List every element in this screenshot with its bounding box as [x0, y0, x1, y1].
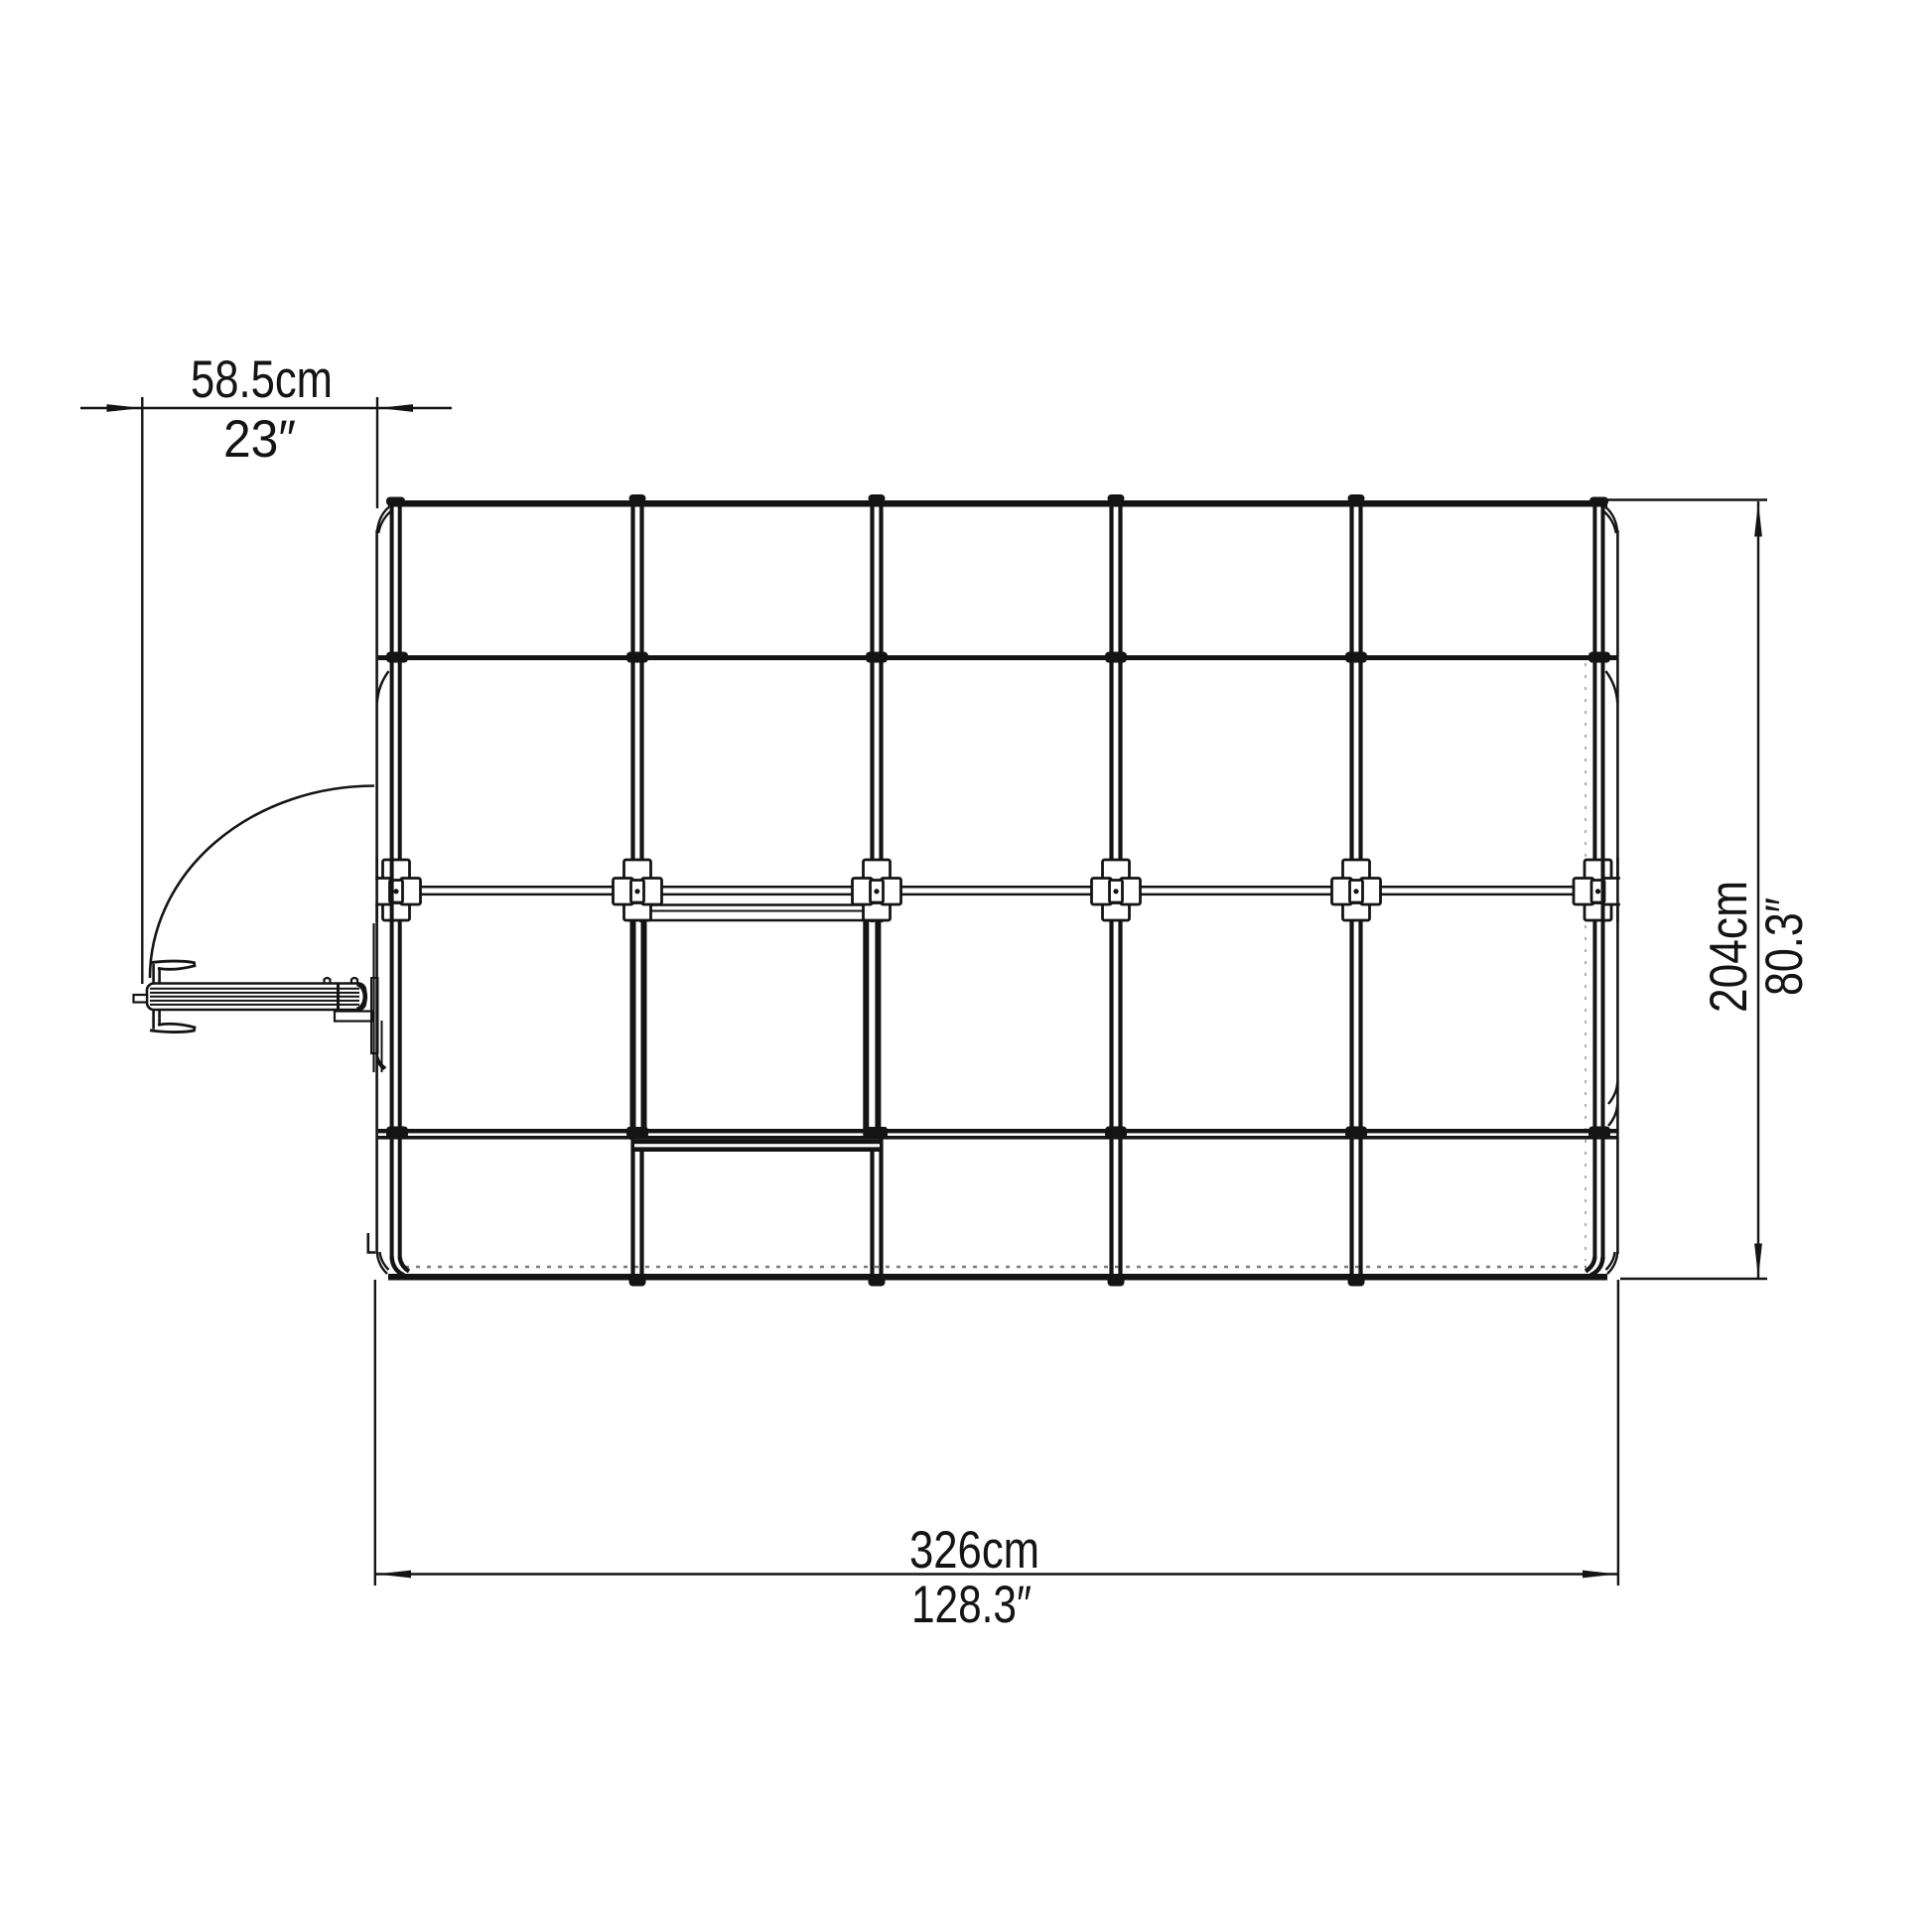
svg-text:58.5cm: 58.5cm [191, 350, 333, 409]
svg-text:326cm: 326cm [909, 1521, 1039, 1580]
svg-text:80.3″: 80.3″ [1755, 897, 1814, 996]
svg-text:204cm: 204cm [1700, 881, 1758, 1013]
svg-text:23″: 23″ [223, 410, 296, 469]
svg-text:128.3″: 128.3″ [911, 1576, 1032, 1634]
